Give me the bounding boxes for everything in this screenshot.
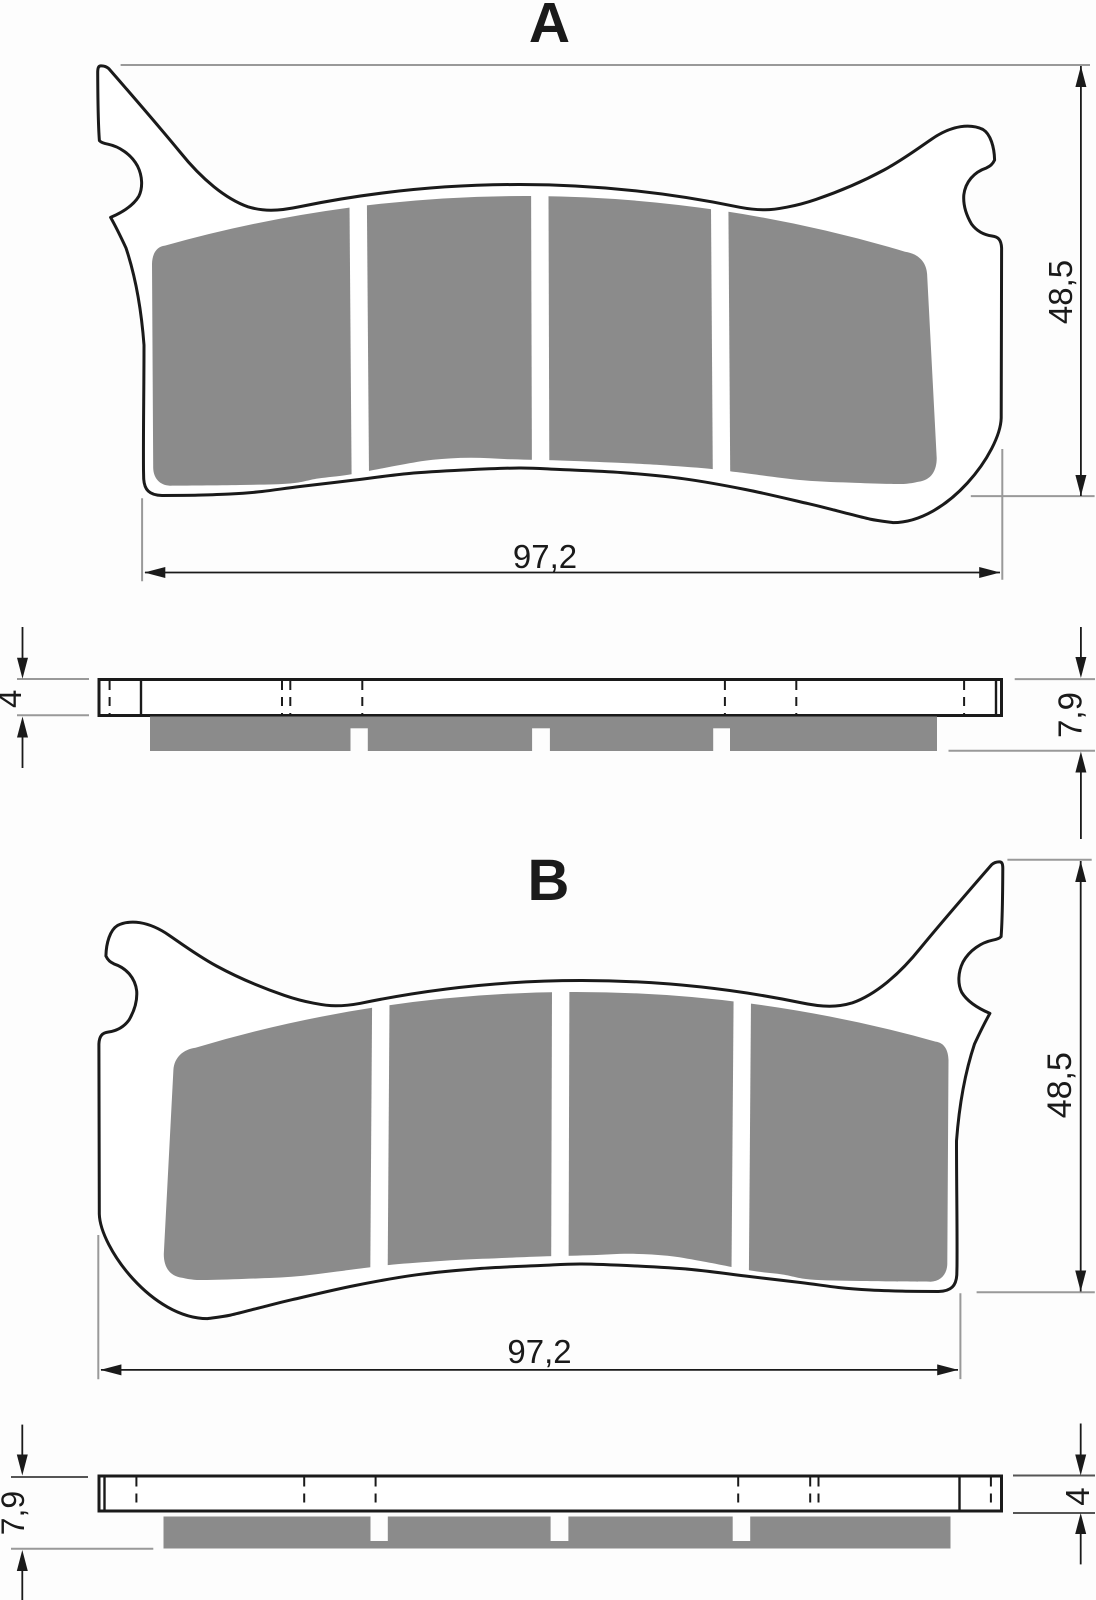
svg-text:A: A xyxy=(529,0,570,55)
svg-text:4: 4 xyxy=(0,690,28,708)
svg-text:97,2: 97,2 xyxy=(507,1333,571,1370)
svg-text:7,9: 7,9 xyxy=(1052,692,1089,738)
svg-text:48,5: 48,5 xyxy=(1041,1052,1079,1118)
svg-text:7,9: 7,9 xyxy=(0,1491,31,1535)
svg-text:B: B xyxy=(528,848,570,913)
svg-text:97,2: 97,2 xyxy=(513,538,577,575)
svg-text:48,5: 48,5 xyxy=(1042,260,1079,324)
svg-text:4: 4 xyxy=(1059,1487,1096,1505)
